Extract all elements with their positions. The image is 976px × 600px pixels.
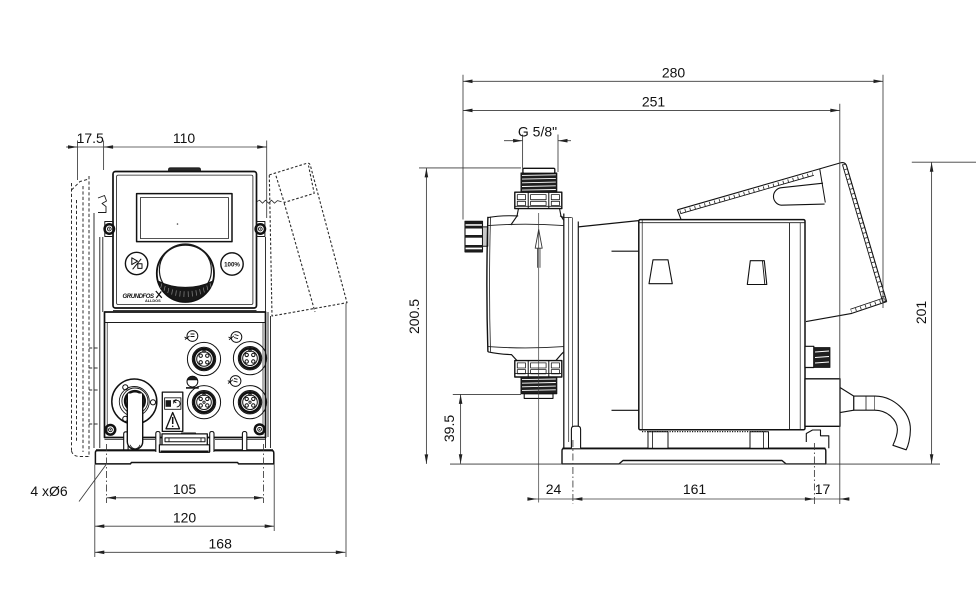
svg-text:105: 105 — [173, 481, 197, 497]
svg-text:ALLDOS: ALLDOS — [145, 299, 161, 303]
svg-text:280: 280 — [662, 65, 686, 81]
svg-text:24: 24 — [546, 481, 562, 497]
svg-text:201: 201 — [913, 301, 929, 325]
svg-text:161: 161 — [683, 481, 707, 497]
svg-text:110: 110 — [173, 130, 196, 146]
svg-text:4 xØ6: 4 xØ6 — [30, 483, 68, 499]
svg-text:17: 17 — [815, 481, 831, 497]
svg-text:200.5: 200.5 — [406, 299, 422, 334]
svg-text:168: 168 — [209, 535, 233, 551]
svg-text:39.5: 39.5 — [441, 415, 457, 442]
svg-text:G 5/8": G 5/8" — [518, 123, 557, 139]
svg-text:17.5: 17.5 — [77, 130, 104, 146]
svg-text:251: 251 — [642, 94, 666, 110]
svg-text:100%: 100% — [224, 261, 240, 268]
svg-text:120: 120 — [173, 509, 197, 525]
